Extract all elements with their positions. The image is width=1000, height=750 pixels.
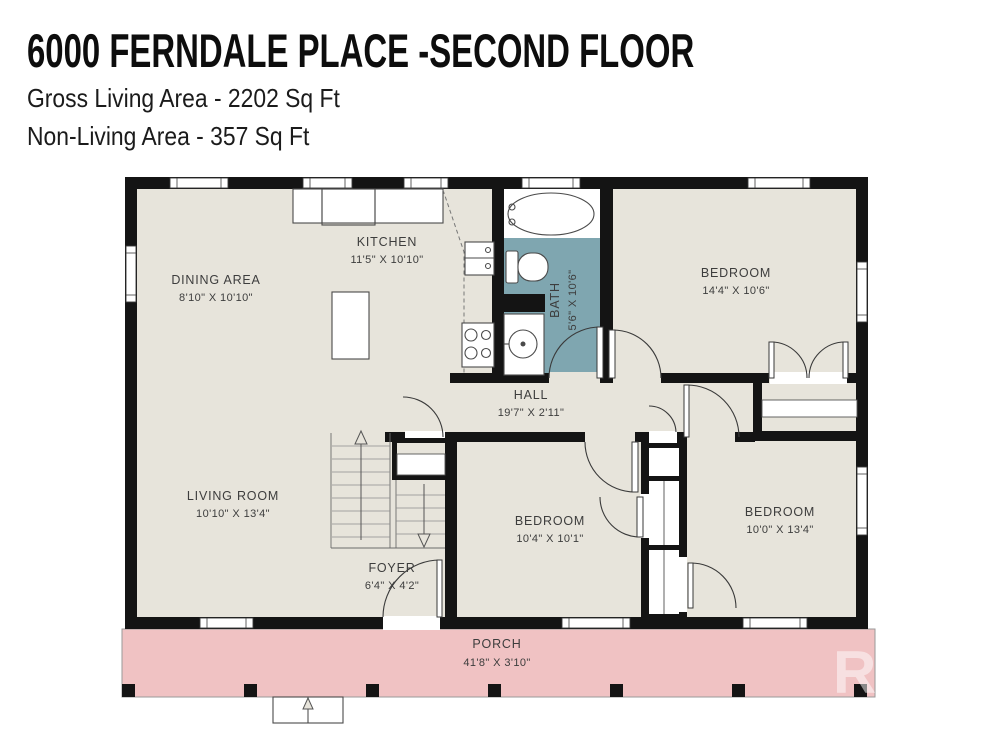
kitchen-island: [332, 292, 369, 359]
window: [857, 467, 867, 535]
porch-dims: 41'8" X 3'10": [463, 657, 530, 669]
window: [126, 246, 136, 302]
window: [857, 262, 867, 322]
wall-hall-bedrooms: [445, 432, 585, 442]
window: [303, 178, 352, 188]
bath-partition-wall: [504, 294, 545, 312]
kitchen-sink: [465, 242, 494, 275]
wall-closet-bedroom: [753, 431, 868, 441]
bedroom-top-label: BEDROOM: [701, 266, 771, 280]
bedroom-middle-label: BEDROOM: [515, 514, 585, 528]
window: [522, 178, 580, 188]
bedroom-right-label: BEDROOM: [745, 505, 815, 519]
porch-steps: [273, 697, 343, 723]
closet-left-wall: [753, 383, 762, 431]
bath-dims: 5'6" X 10'6": [567, 270, 579, 331]
stair-closet: [392, 438, 450, 480]
floor-plan: R: [0, 0, 1000, 750]
bath-label: BATH: [548, 282, 562, 318]
front-door-opening: [383, 616, 440, 630]
bath-sink: [504, 314, 544, 375]
foyer-dims: 6'4" X 4'2": [365, 580, 419, 592]
wall-right: [856, 177, 868, 629]
window: [170, 178, 228, 188]
window: [200, 618, 253, 628]
toilet: [506, 251, 548, 283]
bedroom-top-closet-shelf: [762, 400, 857, 417]
kitchen-label: KITCHEN: [357, 235, 417, 249]
watermark: R: [833, 639, 876, 706]
wall-left: [125, 177, 137, 625]
wall-bedroom-hall: [661, 373, 769, 383]
living-room-label: LIVING ROOM: [187, 489, 279, 503]
bathtub: [508, 193, 594, 235]
hall-closet-small: [649, 448, 679, 476]
window: [562, 618, 630, 628]
window: [743, 618, 807, 628]
bedroom-right-dims: 10'0" X 13'4": [746, 524, 813, 536]
bedroom-middle-dims: 10'4" X 10'1": [516, 533, 583, 545]
hall-dims: 19'7" X 2'11": [498, 407, 565, 419]
porch-label: PORCH: [472, 637, 521, 651]
dining-area-label: DINING AREA: [171, 273, 260, 287]
window: [748, 178, 810, 188]
foyer-label: FOYER: [368, 561, 415, 575]
living-room-dims: 10'10" X 13'4": [196, 508, 270, 520]
bedroom-top-dims: 14'4" X 10'6": [702, 285, 769, 297]
floor-plan-page: 6000 FERNDALE PLACE -SECOND FLOOR Gross …: [0, 0, 1000, 750]
hall-label: HALL: [514, 388, 548, 402]
kitchen-dims: 11'5" X 10'10": [350, 254, 423, 266]
dining-area-dims: 8'10" X 10'10": [179, 292, 253, 304]
stove: [462, 323, 494, 367]
kitchen-counter: [293, 189, 443, 223]
window: [404, 178, 448, 188]
